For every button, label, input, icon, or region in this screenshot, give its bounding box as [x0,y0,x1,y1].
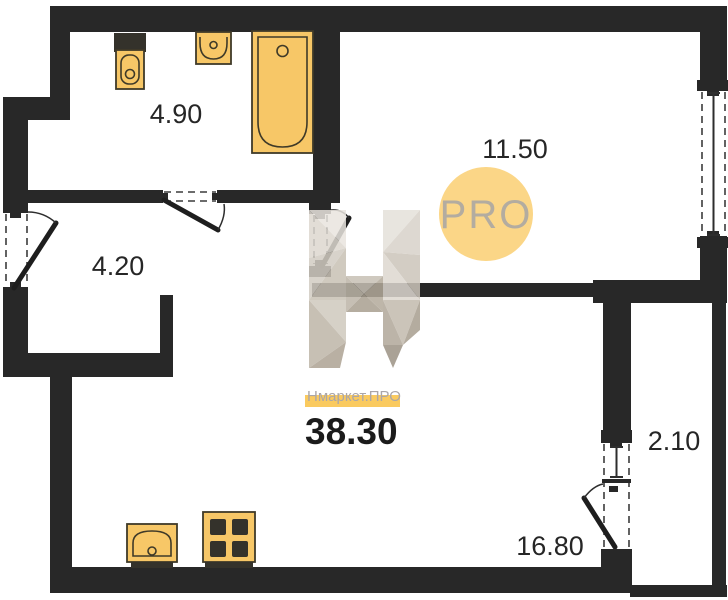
wall-niche-right [160,295,173,377]
wall-niche-bottom [3,353,173,377]
pro-watermark: PRO [439,167,533,261]
floor-plan: PRO Нмаркет.ПРО 4.90 11.50 4.20 2.10 16.… [0,0,728,600]
wall-bottom [50,567,632,593]
total-area-label: 38.30 [305,411,398,452]
washbasin-icon [196,32,231,64]
area-label-living-room: 11.50 [482,134,548,164]
wall-kitchen-balcony [603,297,631,430]
h-logo-watermark [309,210,420,368]
wall-balcony-bottom [630,585,727,597]
balcony-window-door-icon [584,430,632,561]
kitchen-sink-icon [127,524,177,568]
wall-right-upper [700,6,727,90]
wall-balcony-right [712,303,726,597]
living-room-window-icon [697,80,728,248]
wall-left-upper [3,97,28,203]
brand-logo: Нмаркет.ПРО [305,388,401,407]
area-label-bathroom: 4.90 [150,99,203,129]
wall-bath-living [313,32,340,203]
stove-icon [203,512,255,568]
bathroom-door-icon [151,190,229,230]
wall-kitchen-left [50,377,72,593]
brand-text: Нмаркет.ПРО [307,388,401,405]
entrance-door-icon [3,202,56,298]
wall-bath-bottom-right [228,190,313,203]
area-label-balcony: 2.10 [648,426,701,456]
pro-watermark-text: PRO [440,193,533,237]
area-label-kitchen-living: 16.80 [516,531,584,561]
toilet-icon [114,33,146,89]
wall-top [50,6,727,32]
area-label-hallway: 4.20 [92,251,145,281]
bathtub-icon [252,31,313,153]
wall-bath-bottom-left [28,190,153,203]
